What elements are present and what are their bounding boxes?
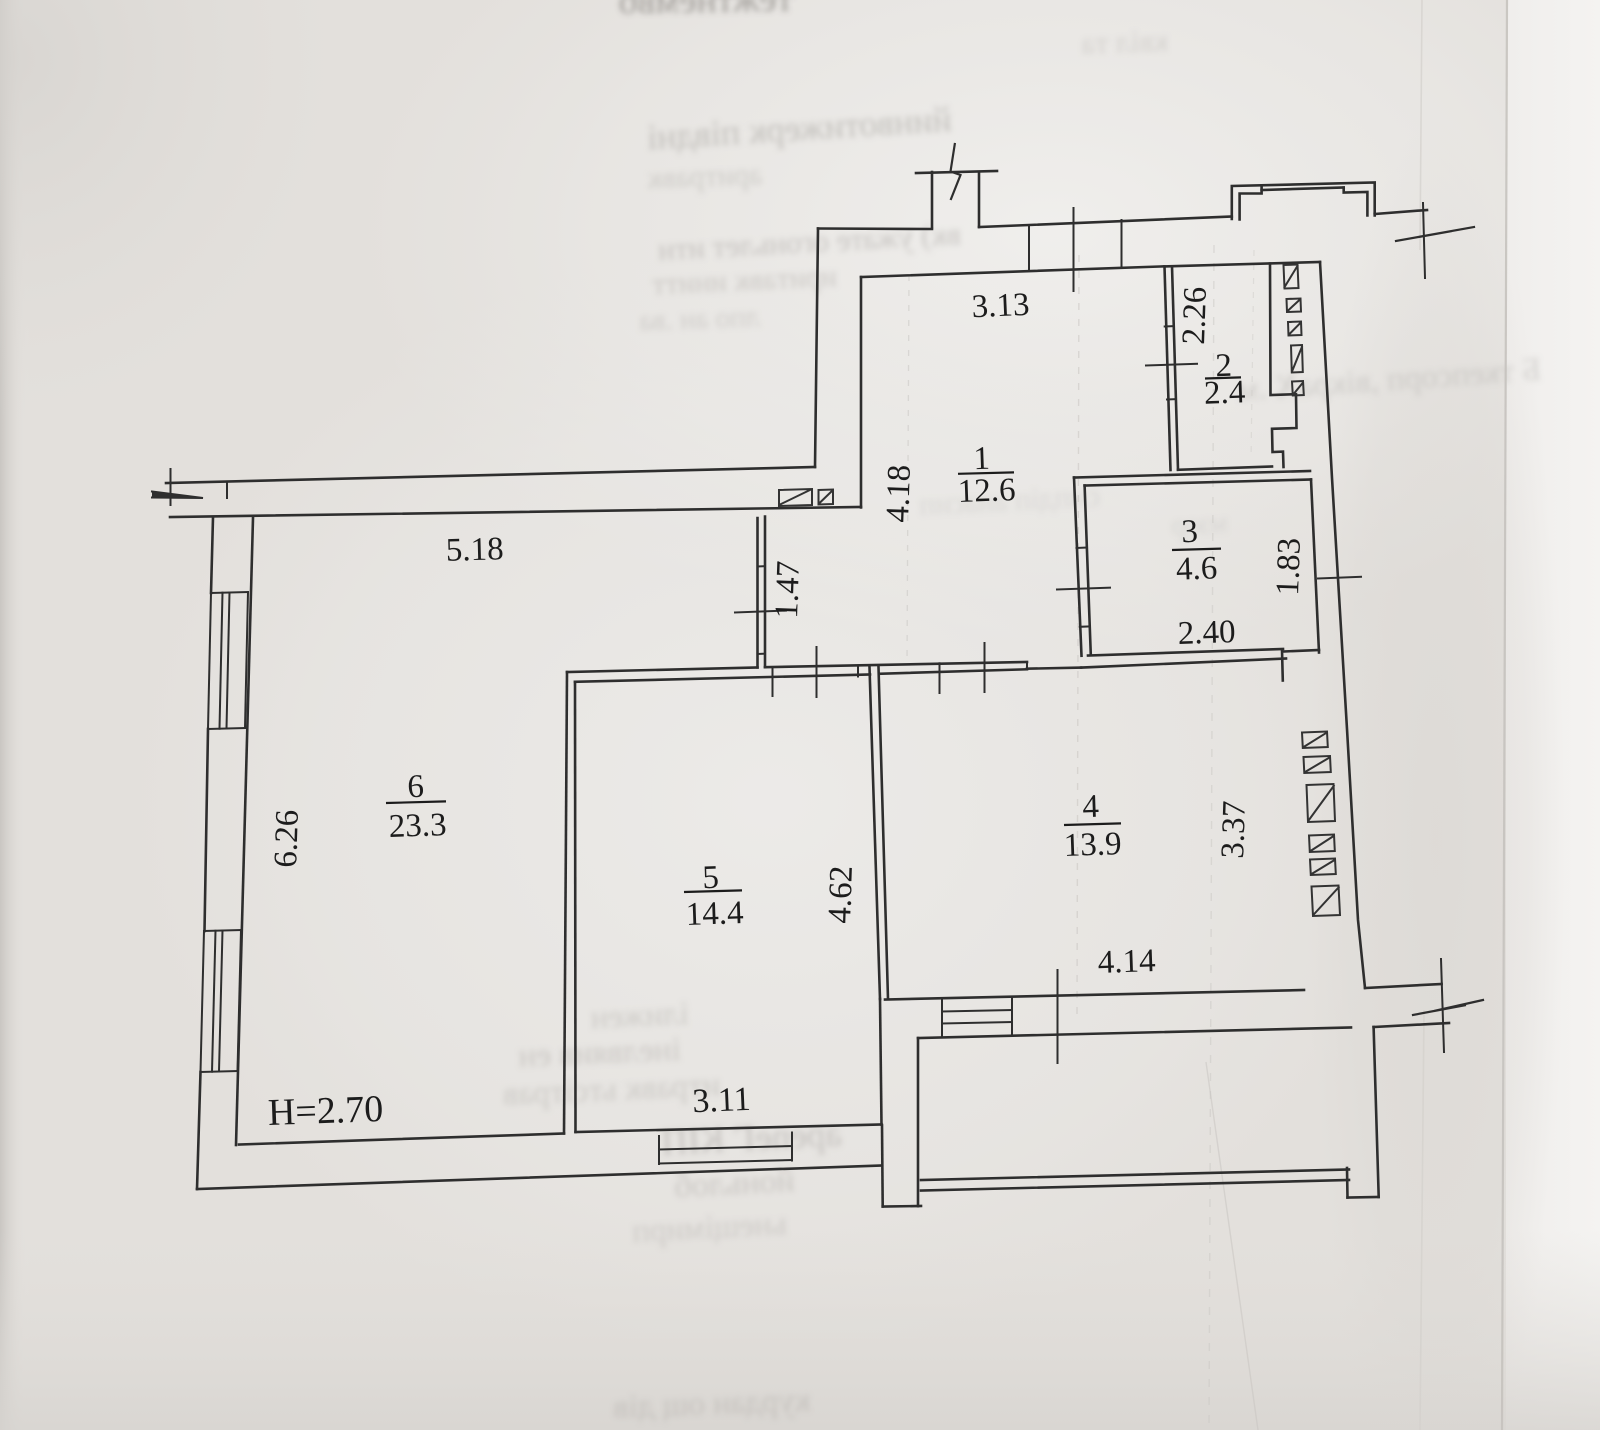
svg-text:ілижен: ілижен	[590, 996, 689, 1036]
svg-text:2.40: 2.40	[1177, 614, 1236, 652]
svg-text:квіл та: квіл та	[1081, 25, 1168, 61]
svg-text:14.4: 14.4	[685, 895, 744, 933]
svg-text:4.6: 4.6	[1175, 550, 1217, 587]
svg-text:курдан ощ дів: курдан ощ дів	[612, 1383, 810, 1426]
svg-text:3.11: 3.11	[692, 1081, 752, 1121]
svg-text:4.14: 4.14	[1097, 943, 1156, 981]
svg-text:мзор: мзор	[1170, 508, 1228, 542]
svg-text:12.6: 12.6	[957, 472, 1016, 510]
svg-text:3.13: 3.13	[971, 287, 1030, 325]
svg-text:23.3: 23.3	[388, 807, 447, 845]
svg-text:H=2.70: H=2.70	[267, 1088, 384, 1134]
svg-text:лпо ан .ва: лпо ан .ва	[639, 301, 761, 337]
svg-text:2.4: 2.4	[1203, 374, 1245, 411]
svg-text:2.26: 2.26	[1176, 286, 1214, 345]
svg-text:1.47: 1.47	[769, 560, 807, 619]
svg-text:4.62: 4.62	[822, 865, 860, 924]
svg-text:4.18: 4.18	[880, 464, 918, 523]
svg-text:4: 4	[1082, 789, 1100, 826]
svg-text:1: 1	[973, 441, 991, 478]
svg-text:3: 3	[1181, 514, 1199, 551]
svg-text:1.83: 1.83	[1270, 537, 1308, 596]
svg-text:13.9: 13.9	[1063, 826, 1122, 864]
svg-text:тежтнемвб: тежтнемвб	[618, 0, 793, 23]
svg-text:аритравк: аритравк	[646, 158, 762, 195]
svg-text:6: 6	[407, 769, 425, 806]
svg-text:5.18: 5.18	[445, 531, 504, 568]
svg-text:6.26: 6.26	[268, 809, 306, 868]
svg-text:3.37: 3.37	[1215, 800, 1253, 859]
svg-text:інелвяив ен: інелвяив ен	[518, 1031, 681, 1074]
